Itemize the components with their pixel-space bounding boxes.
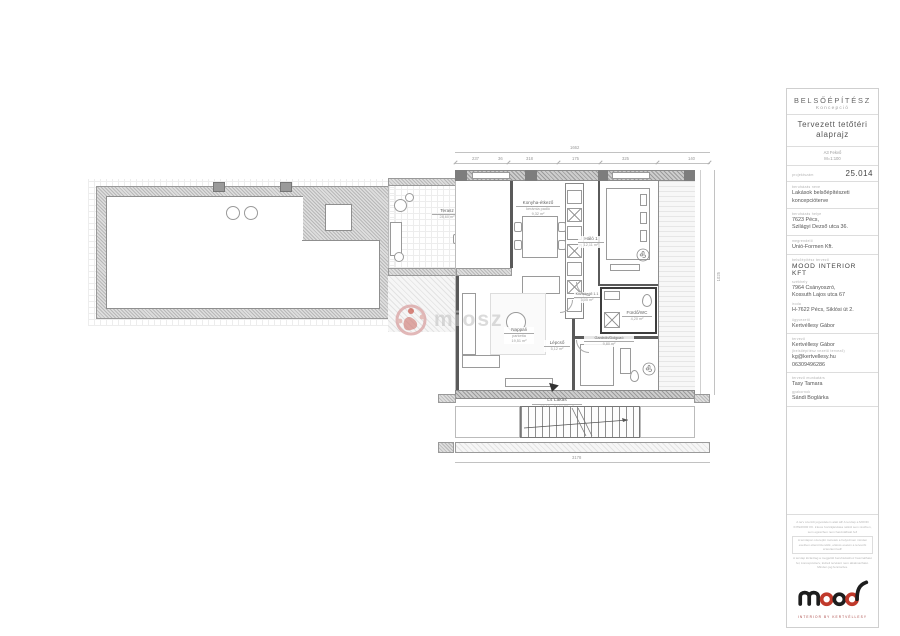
kitchen-island [522,276,560,294]
dim-seg-6: 140 [688,156,695,161]
titleblock-fine-print: A terv szerzői jogvédelem alatt áll! A t… [787,514,878,575]
dining-chair [558,240,566,250]
flat-roof-area [106,196,303,309]
hq-label: székhely [792,280,873,284]
dimension-line-top-segments [455,163,710,164]
collaborator-label: tervező munkatárs [792,376,873,380]
roof-slope-east [658,181,695,392]
titleblock-project-name: beruházás neve Lakások belsőépítészeti k… [787,182,878,209]
designer-company: MOOD INTERIOR KFT [792,263,873,277]
titleblock-logo: INTERIOR BY KERTVÉLLESY [787,575,878,627]
client-name: Unió-Formen Kft. [792,244,873,251]
terrace-sofa [390,222,402,256]
drawing-sheet: 1662 237 36 318 175 325 140 Terasz 28,60… [0,0,900,636]
terrace-plant [394,199,407,212]
stair-direction-arrow [520,406,640,438]
dim-top-total: 1662 [570,145,579,150]
room-stamp-halo1: Háló 1 12,11 m² [578,236,604,248]
roof-drain [226,206,240,220]
terrace-side-table [394,252,404,262]
toilet [630,370,639,382]
project-address-line2: Szilágyi Dezső utca 36. [792,224,873,231]
client-label: megrendelő [792,239,873,243]
dim-seg-2: 36 [498,156,503,161]
designer-name: Kertvéllesy Gábor [792,342,873,349]
discipline-subtitle: Koncepció [792,106,873,111]
manager-label: ügyvezető [792,318,873,322]
kitchen-unit [567,262,582,276]
kitchen-hob [567,208,582,222]
hq-line2: Kossuth Lajos utca 67 [792,292,873,299]
wall-post [684,170,695,181]
roof-window [612,172,650,179]
washbasin [604,291,620,300]
toilet [642,294,652,307]
sheet-scale: M=1:100 [792,156,873,162]
drawing-number: 25.014 [846,169,873,178]
project-name: Lakások belsőépítészeti koncepcióterve [792,190,873,205]
designer-phone: 06309496286 [792,362,873,369]
intern-name: Sándi Boglárka [792,395,873,402]
wall-bedroom-west [598,181,600,285]
retaining-band [455,442,710,453]
roof-anchor [280,182,292,192]
tv-cabinet [505,378,553,387]
shower [604,312,620,328]
fine-print-3: A tervlap kizárólag a megjelölt beruházá… [792,556,873,570]
titleblock-team: tervező munkatárs Tasy Tamara gyakornok … [787,373,878,407]
living-sofa-corner [462,355,500,368]
project-address-line1: 7623 Pécs, [792,217,873,224]
wall-living-north [456,268,512,276]
designer-company-label: belsőépítész tervező [792,258,873,262]
dining-chair [514,222,522,232]
room-stamp-gardrob: Gardrób/Dolgozó 9,80 m² [584,336,634,347]
titleblock-discipline: BELSŐÉPÍTÉSZ Koncepció [787,89,878,115]
project-name-label: beruházás neve [792,185,873,189]
designer-email: kg@kertvellesy.hu [792,354,873,361]
titleblock-format: A3 Fekvő M=1:100 [787,147,878,167]
dim-seg-3: 318 [526,156,533,161]
roof-drain [244,206,258,220]
watermark-logo-icon [392,301,430,339]
fan-icon [636,248,650,262]
dim-bottom-total: 3178 [572,455,581,460]
retaining-band-end [438,442,454,453]
project-address-label: beruházás helye [792,212,873,216]
office-label: iroda [792,302,873,306]
bed-pillow [640,212,647,224]
dining-table [522,216,558,258]
bed-pillow [640,194,647,206]
dim-seg-4: 175 [572,156,579,161]
bed-bench [610,264,640,271]
manager-name: Kertvéllesy Gábor [792,323,873,330]
room-stamp-furdo: Fürdő/WC 4,20 m² [622,310,652,322]
watermark: miosz [392,298,522,342]
dimension-line-right [714,170,715,395]
stair-landing-right [640,406,695,438]
flat-roof-area-lower [302,240,380,309]
wall-post [525,170,537,181]
desk [620,348,631,374]
dim-seg-1: 237 [472,156,479,161]
wall-post [455,170,467,181]
hq-line1: 7964 Csányoszró, [792,285,873,292]
titleblock-project-address: beruházás helye 7623 Pécs, Szilágyi Dezs… [787,209,878,236]
watermark-text: miosz [434,308,504,332]
room-stamp-lepcso: Lépcső 5,12 m² [544,340,570,352]
floor-plan: 1662 237 36 318 175 325 140 Terasz 28,60… [0,0,786,636]
designer-label: tervező [792,337,873,341]
roof-window [472,172,510,179]
dim-seg-5: 325 [622,156,629,161]
south-wing-wall [438,394,456,403]
collaborator-name: Tasy Tamara [792,381,873,388]
wall-kitchen-west [510,181,513,268]
titleblock-client: megrendelő Unió-Formen Kft. [787,236,878,255]
terrace-plant [405,193,414,202]
fine-print-2: A tervlapon szereplő méretek a helyszíne… [792,536,873,554]
roof-edge-line [700,170,701,395]
stair-landing-left [455,406,520,438]
titleblock-drawing-title: Tervezett tetőtéri alaprajz [787,115,878,147]
drawing-title: Tervezett tetőtéri alaprajz [792,120,873,141]
discipline-title: BELSŐÉPÍTÉSZ [792,96,873,105]
titleblock-designer: tervező Kertvéllesy Gábor (belsőépítész … [787,334,878,373]
kitchen-sink [567,190,582,204]
title-block: BELSŐÉPÍTÉSZ Koncepció Tervezett tetőtér… [786,88,879,628]
fine-print-1: A terv szerzői jogvédelem alatt áll! A t… [792,520,873,534]
titleblock-number: projektszám 25.014 [787,166,878,182]
dimension-line-bottom [455,462,710,463]
wall-bath-north [598,284,658,286]
mood-logo-icon [796,578,870,612]
dining-chair [558,222,566,232]
dimension-line-top-total [455,152,710,153]
dining-chair [514,240,522,250]
titleblock-company: belsőépítész tervező MOOD INTERIOR KFT s… [787,255,878,334]
dim-right-total: 1025 [716,272,721,281]
drawing-number-label: projektszám [792,173,814,177]
roof-anchor [213,182,225,192]
intern-label: gyakornok [792,390,873,394]
south-wing-wall [694,394,710,403]
bed-pillow [640,230,647,242]
wall-post [598,170,608,181]
skylight [325,204,352,231]
fan-icon [642,362,656,376]
room-stamp-konyha: Konyha-étkező kerámia padló 9,32 m² [516,200,560,217]
office-address: H-7622 Pécs, Siklósi út 2. [792,307,873,314]
designer-note: (belsőépítész vezető tervező) [792,349,873,353]
logo-tagline: INTERIOR BY KERTVÉLLESY [792,615,873,619]
